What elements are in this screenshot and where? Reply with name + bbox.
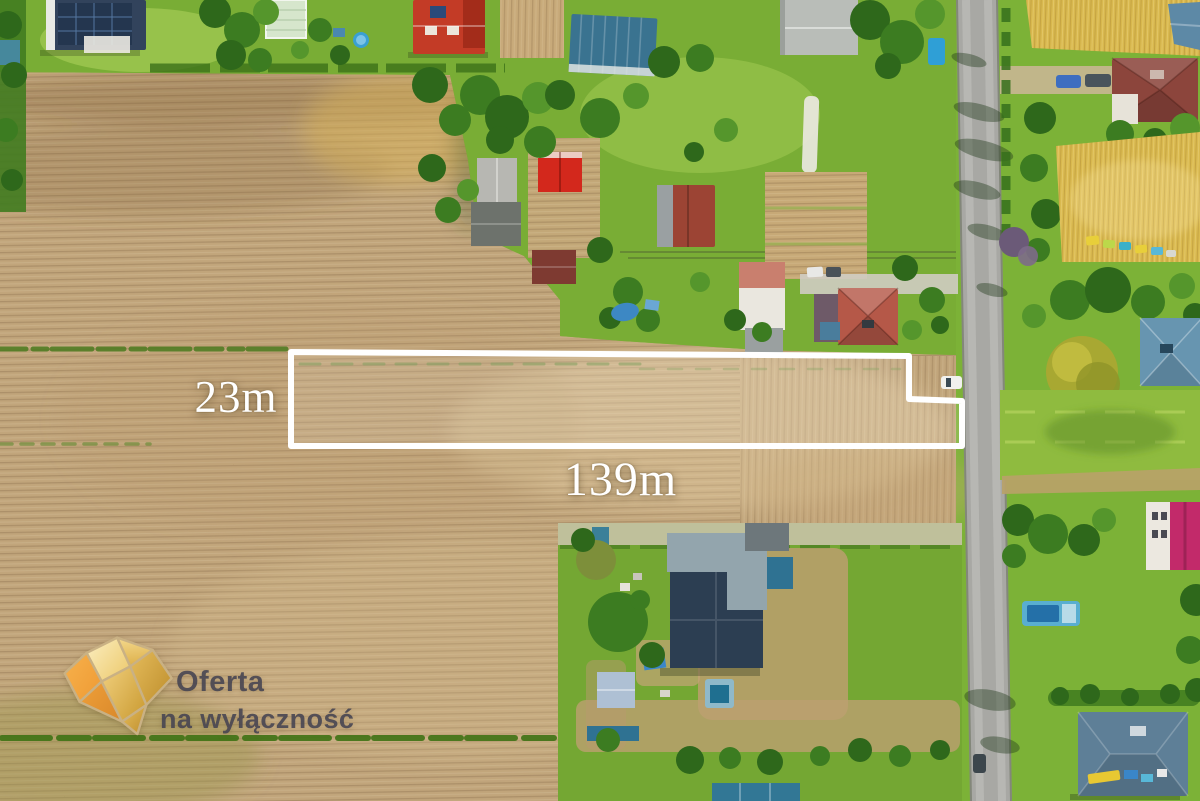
aerial-photo: 23m 139m — [0, 0, 1200, 801]
gray-shed — [477, 158, 517, 202]
teal-shed-roof — [0, 40, 20, 65]
garden-item — [333, 28, 345, 37]
white-tarp — [802, 96, 820, 173]
white-car — [941, 376, 962, 389]
garden-rows-top — [500, 0, 564, 58]
dark-car — [973, 754, 986, 773]
maroon-shed — [532, 250, 576, 284]
gray-building — [780, 0, 858, 55]
small-pool — [928, 38, 945, 65]
gray-blue-hip-house — [1070, 712, 1188, 800]
blue-car — [1056, 75, 1081, 88]
teal-lean-roof — [767, 557, 793, 589]
meadow — [1000, 390, 1200, 480]
plot-width-label: 139m — [518, 455, 723, 505]
plot-outline — [291, 352, 962, 446]
light-blue-house — [597, 672, 635, 708]
steel-blue-house — [1140, 318, 1200, 386]
watermark-subtitle: na wyłączność — [160, 704, 354, 735]
bottom-residential — [558, 523, 962, 801]
watermark-title: Oferta — [176, 666, 264, 699]
pink-roof-house — [1146, 502, 1200, 570]
brown-house — [657, 185, 715, 247]
backyard-pool — [705, 679, 734, 708]
gray-car — [1085, 74, 1111, 87]
red-shed — [538, 152, 582, 192]
covered-pool — [1022, 601, 1080, 626]
dark-outbuilding — [745, 523, 789, 551]
plot-depth-label: 23m — [158, 374, 314, 421]
red-roof-house — [408, 0, 488, 58]
blue-metal-house — [569, 14, 658, 76]
teal-bottom-sheds — [712, 783, 800, 801]
watermark: Oferta na wyłączność — [50, 630, 390, 755]
round-pool — [353, 32, 369, 48]
red-hip-house — [814, 288, 898, 345]
dark-barn — [471, 202, 521, 246]
solar-roof-building — [40, 0, 146, 56]
